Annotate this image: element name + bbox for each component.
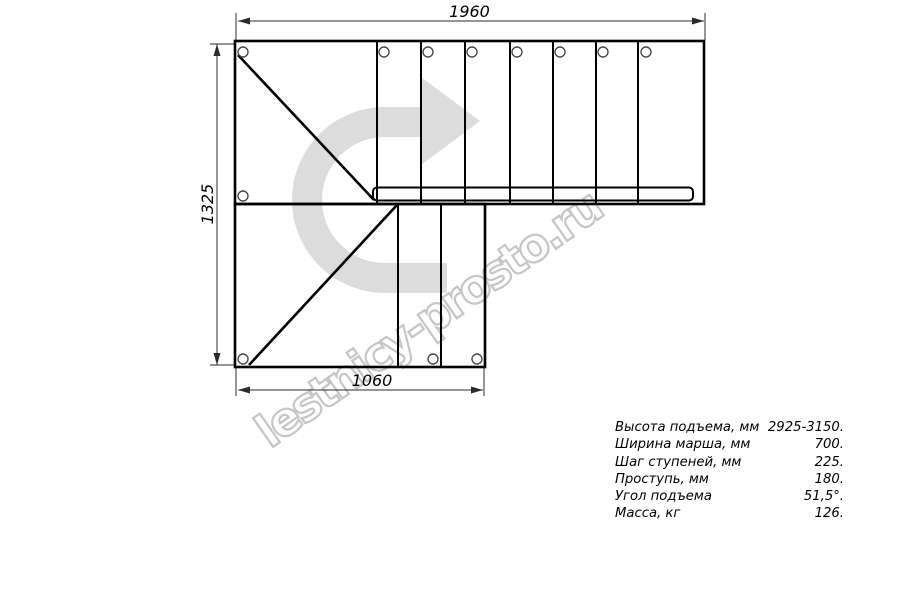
spec-label: Ширина марша, мм — [615, 436, 750, 453]
spec-label: Высота подъема, мм — [615, 419, 759, 436]
dimension-arrows — [214, 18, 705, 394]
spec-row-step-pitch: Шаг ступеней, мм 225. — [615, 454, 844, 471]
top-flight-outline — [235, 41, 704, 204]
top-flight-step-lines — [377, 42, 638, 203]
spec-row-tread: Проступь, мм 180. — [615, 471, 844, 488]
spec-row-angle: Угол подъема 51,5°. — [615, 488, 844, 505]
dimension-bottom-width: 1060 — [334, 371, 410, 390]
spec-value: 225. — [815, 454, 844, 471]
spec-row-march-width: Ширина марша, мм 700. — [615, 436, 844, 453]
stair-drawing-canvas: lestnicy-prosto.ru — [0, 0, 900, 600]
spec-value: 2925-3150. — [768, 419, 844, 436]
dimension-top-width: 1960 — [432, 2, 507, 21]
spec-row-mass: Масса, кг 126. — [615, 505, 844, 522]
spec-label: Шаг ступеней, мм — [615, 454, 741, 471]
bottom-flight-step-lines — [398, 205, 441, 366]
spec-row-height: Высота подъема, мм 2925-3150. — [615, 419, 844, 436]
bottom-flight-diagonal — [249, 205, 397, 365]
spec-table: Высота подъема, мм 2925-3150. Ширина мар… — [615, 419, 844, 523]
spec-value: 700. — [815, 436, 844, 453]
spec-value: 126. — [815, 505, 844, 522]
mounting-holes — [238, 47, 651, 364]
spec-label: Масса, кг — [615, 505, 680, 522]
spec-value: 51,5°. — [804, 488, 844, 505]
spec-value: 180. — [815, 471, 844, 488]
spec-label: Угол подъема — [615, 488, 712, 505]
spec-label: Проступь, мм — [615, 471, 709, 488]
top-flight-diagonal — [238, 55, 374, 200]
bottom-flight-outline — [235, 204, 485, 367]
dimension-left-height: 1325 — [198, 169, 214, 239]
